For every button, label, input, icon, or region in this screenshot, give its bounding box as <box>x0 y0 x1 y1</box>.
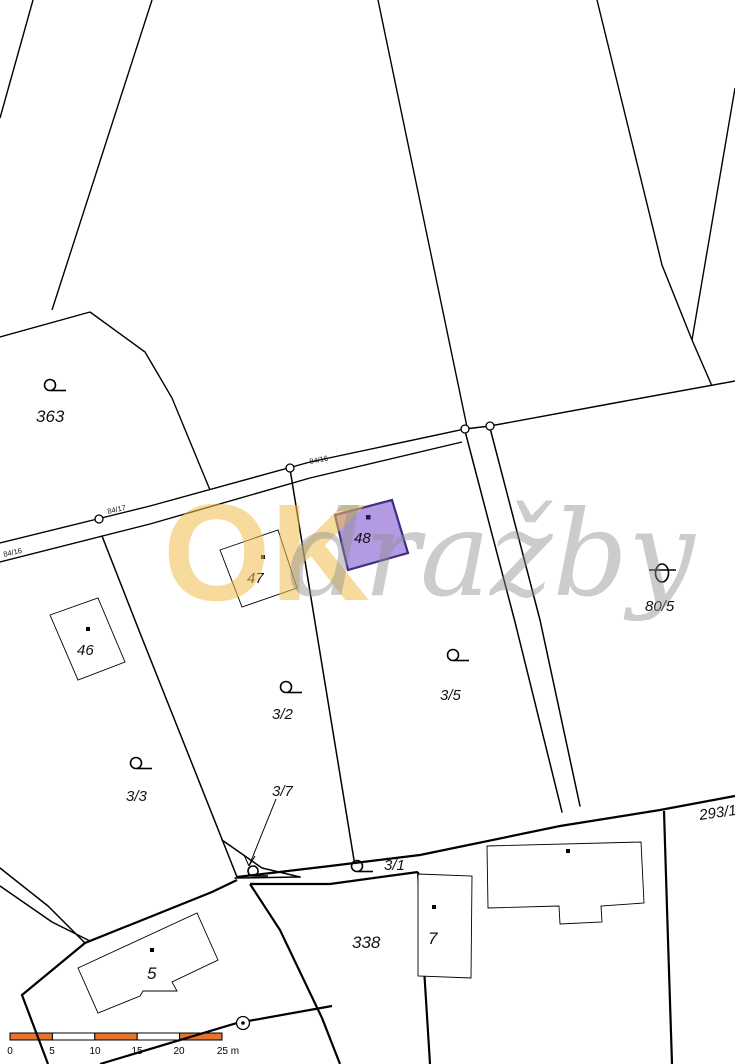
building-point-neighbor <box>566 849 570 853</box>
road-upper-line <box>490 381 735 426</box>
boundary-line <box>52 0 152 310</box>
scale-tick-25m: 25 m <box>217 1046 239 1057</box>
boundary-line <box>597 0 692 340</box>
parcel-label-3-7: 3/7 <box>272 783 294 800</box>
boundary-line <box>692 88 735 340</box>
parcel-label-3-5: 3/5 <box>440 687 462 704</box>
cadastral-map: 0 5 10 15 20 25 m <box>0 0 735 1064</box>
boundary-line <box>235 877 300 878</box>
boundary-line <box>90 312 210 490</box>
road-parcel-label: 84/17 <box>106 503 126 516</box>
boundary-line <box>378 0 467 427</box>
boundary-line <box>0 886 90 941</box>
scale-bar-segment <box>10 1033 52 1040</box>
building-point-46 <box>86 627 90 631</box>
benchmark-point <box>237 1017 250 1030</box>
parcel-label-3-2: 3/2 <box>272 706 294 723</box>
landuse-symbol-3-3 <box>131 758 153 769</box>
boundary-line <box>664 811 672 1064</box>
boundary-line <box>692 340 712 386</box>
parcel-label-3-1: 3/1 <box>384 857 405 874</box>
scale-tick-10: 10 <box>89 1046 101 1057</box>
landuse-symbol-363 <box>45 380 67 391</box>
landuse-symbol-3-5 <box>448 650 470 661</box>
building-label-5: 5 <box>147 964 157 983</box>
scale-bar-segment <box>52 1033 94 1040</box>
scale-bar-segment <box>95 1033 137 1040</box>
scale-bar-segment <box>137 1033 179 1040</box>
building-label-46: 46 <box>77 642 94 659</box>
survey-point <box>486 422 494 430</box>
watermark: OK dražby <box>163 476 696 630</box>
survey-point <box>461 425 469 433</box>
boundary-line <box>250 884 340 1064</box>
building-5 <box>78 913 218 1013</box>
building-label-7: 7 <box>428 929 438 948</box>
scale-tick-20: 20 <box>173 1046 185 1057</box>
parcel-label-338: 338 <box>352 933 381 952</box>
parcel-label-3-3: 3/3 <box>126 788 148 805</box>
parcel-label-363: 363 <box>36 407 65 426</box>
field-boundaries <box>0 0 735 490</box>
scale-tick-0: 0 <box>7 1046 13 1057</box>
scale-tick-5: 5 <box>49 1046 55 1057</box>
building-46 <box>50 598 125 680</box>
building-point-7 <box>432 905 436 909</box>
parcel-label-293-1: 293/1 <box>697 802 735 824</box>
building-neighbor <box>487 842 644 924</box>
building-point-5 <box>150 948 154 952</box>
landuse-symbol-3-2 <box>281 682 303 693</box>
survey-point <box>95 515 103 523</box>
boundary-line <box>0 0 33 118</box>
boundary-line <box>237 796 735 877</box>
map-canvas: 0 5 10 15 20 25 m <box>0 0 735 1064</box>
label-arrow-3-7 <box>244 799 276 866</box>
boundary-line <box>0 312 90 337</box>
watermark-drazby: dražby <box>288 485 696 623</box>
building-7 <box>418 874 472 978</box>
road-parcel-label: 84/16 <box>309 454 329 466</box>
survey-point <box>286 464 294 472</box>
